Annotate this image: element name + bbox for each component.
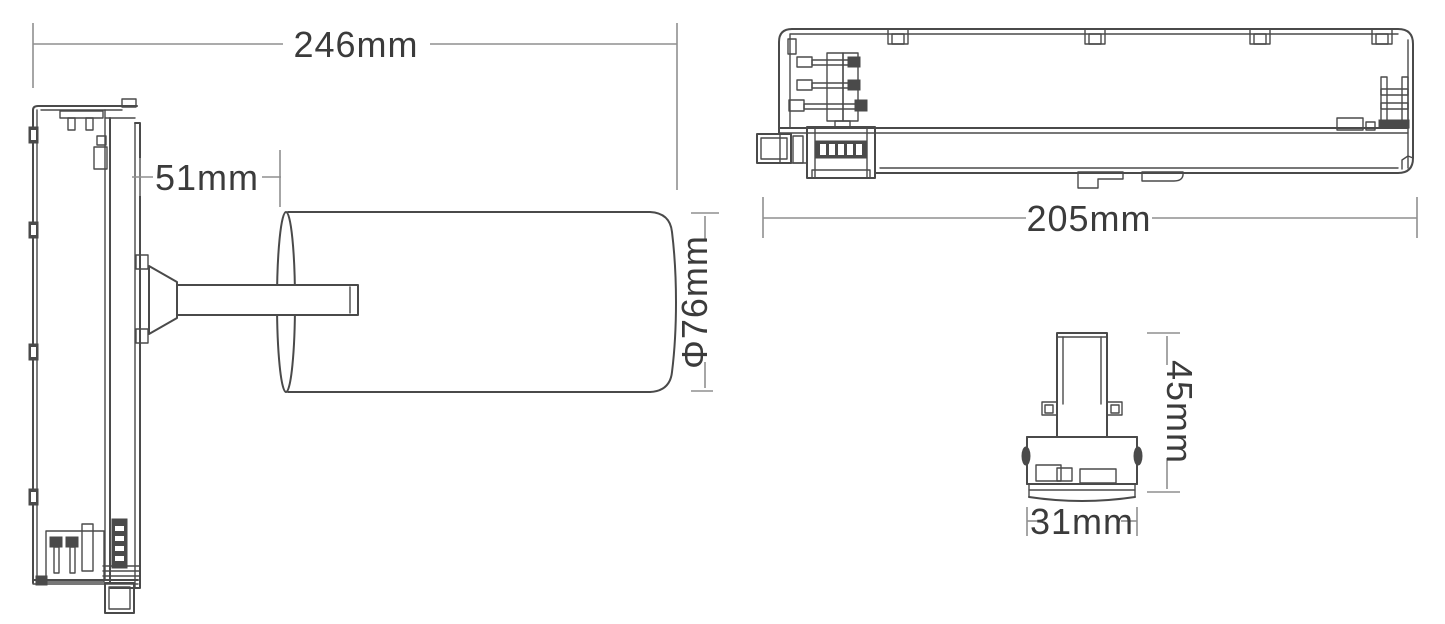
head-offset-label: 51mm bbox=[155, 157, 259, 198]
bottom-terminal-detail bbox=[36, 519, 140, 613]
overall-length-label: 246mm bbox=[293, 24, 418, 65]
end-view: 45mm 31mm bbox=[1022, 333, 1200, 542]
body-length-label: 205mm bbox=[1026, 198, 1151, 239]
head-diameter-label: Φ76mm bbox=[674, 235, 715, 369]
dimension-end-width: 31mm bbox=[1027, 501, 1137, 542]
dimension-end-height: 45mm bbox=[1147, 333, 1200, 492]
dimension-head-offset: 51mm bbox=[132, 150, 281, 207]
dimension-head-diameter: Φ76mm bbox=[674, 213, 719, 391]
top-mounting-tabs bbox=[888, 29, 1392, 44]
terminal-screws-detail bbox=[788, 39, 867, 128]
top-latch-detail bbox=[60, 111, 107, 169]
arm-shaft bbox=[177, 285, 358, 315]
lamp-cylinder-front bbox=[650, 212, 676, 392]
track-plug-detail bbox=[807, 127, 875, 178]
technical-drawing: 246mm 51mm Φ76mm bbox=[0, 0, 1445, 624]
adapter-end-profile bbox=[1022, 333, 1142, 501]
side-view: 246mm 51mm Φ76mm bbox=[29, 23, 719, 613]
dimension-body-length: 205mm bbox=[763, 197, 1417, 239]
end-height-label: 45mm bbox=[1159, 360, 1200, 464]
end-width-label: 31mm bbox=[1030, 501, 1134, 542]
arm-cone-bracket bbox=[149, 266, 177, 334]
mounting-arm bbox=[136, 255, 358, 343]
top-view: 205mm bbox=[757, 29, 1417, 239]
track-adapter-body bbox=[29, 99, 140, 613]
bottom-hooks bbox=[1078, 172, 1183, 188]
right-end-detail bbox=[1337, 77, 1413, 169]
